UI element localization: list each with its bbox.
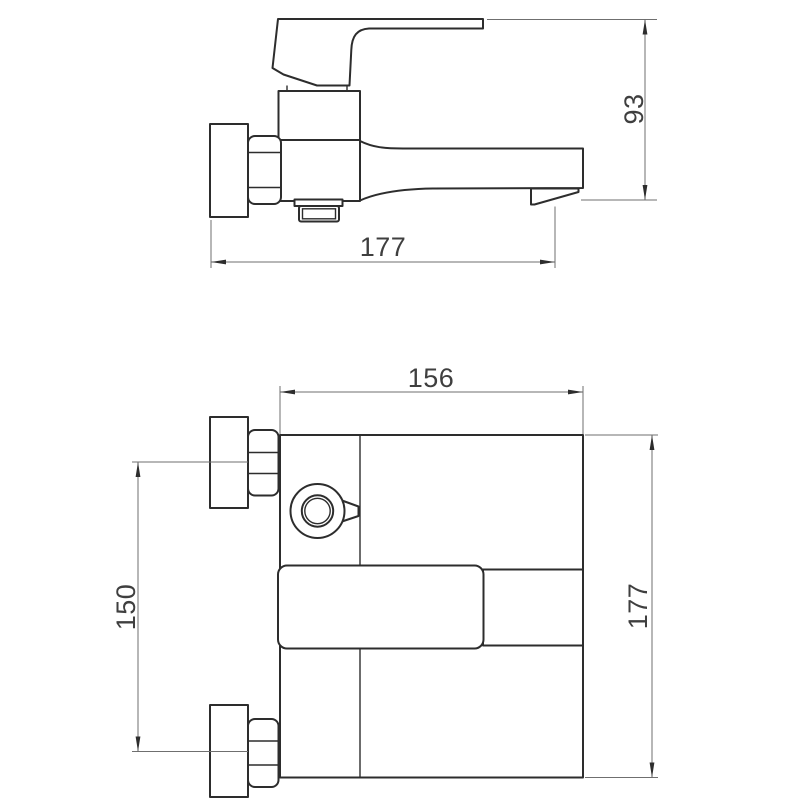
dimension-label-side-length: 177 — [360, 232, 407, 262]
arrowhead-up — [136, 462, 141, 477]
wall-flange-side — [210, 124, 248, 217]
arrowhead-left — [211, 260, 226, 265]
dimension-front-width: 156 — [280, 363, 583, 434]
side-view: 177 93 — [210, 19, 657, 268]
mounting-nut-bottom — [248, 719, 279, 787]
arrowhead-up — [650, 435, 655, 450]
mounting-nut-side — [248, 136, 281, 204]
dimension-front-height: 177 — [585, 435, 658, 778]
technical-drawing-canvas: 177 93 — [0, 0, 800, 800]
arrowhead-down — [643, 185, 648, 200]
arrowhead-up — [643, 20, 648, 35]
dimension-label-front-width: 156 — [408, 363, 455, 393]
arrowhead-down — [136, 737, 141, 752]
lever-handle-side — [273, 19, 484, 86]
cartridge-cap — [279, 91, 361, 140]
arrowhead-right — [568, 390, 583, 395]
dimension-side-length: 177 — [211, 207, 555, 269]
arrowhead-left — [280, 390, 295, 395]
dimension-label-front-height: 177 — [623, 583, 653, 630]
arrowhead-right — [540, 260, 555, 265]
valve-body-side — [279, 140, 361, 201]
faucet-technical-drawing: 177 93 — [0, 0, 800, 800]
arrowhead-down — [650, 763, 655, 778]
dimension-label-side-height: 93 — [619, 93, 649, 124]
dimension-label-front-spacing: 150 — [111, 584, 141, 631]
lever-handle-end — [483, 570, 583, 646]
mounting-nut-top — [248, 430, 279, 496]
diverter-knob-ring — [302, 495, 333, 526]
lever-handle-front — [278, 566, 484, 649]
front-view: 156 150 177 — [111, 363, 658, 797]
spout-aerator-wedge — [531, 189, 579, 205]
